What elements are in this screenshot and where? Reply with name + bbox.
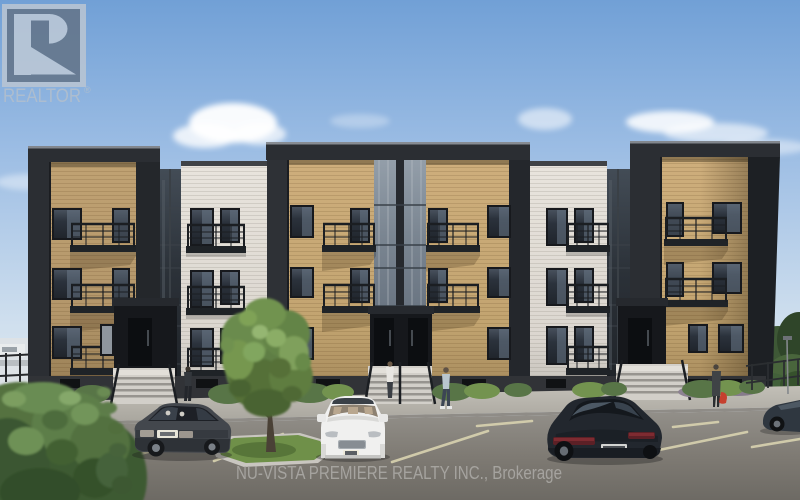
svg-text:®: ®: [84, 85, 91, 95]
svg-text:NU-VISTA PREMIERE REALTY INC.,: NU-VISTA PREMIERE REALTY INC., Brokerage: [236, 462, 562, 483]
svg-text:REALTOR: REALTOR: [3, 86, 81, 107]
